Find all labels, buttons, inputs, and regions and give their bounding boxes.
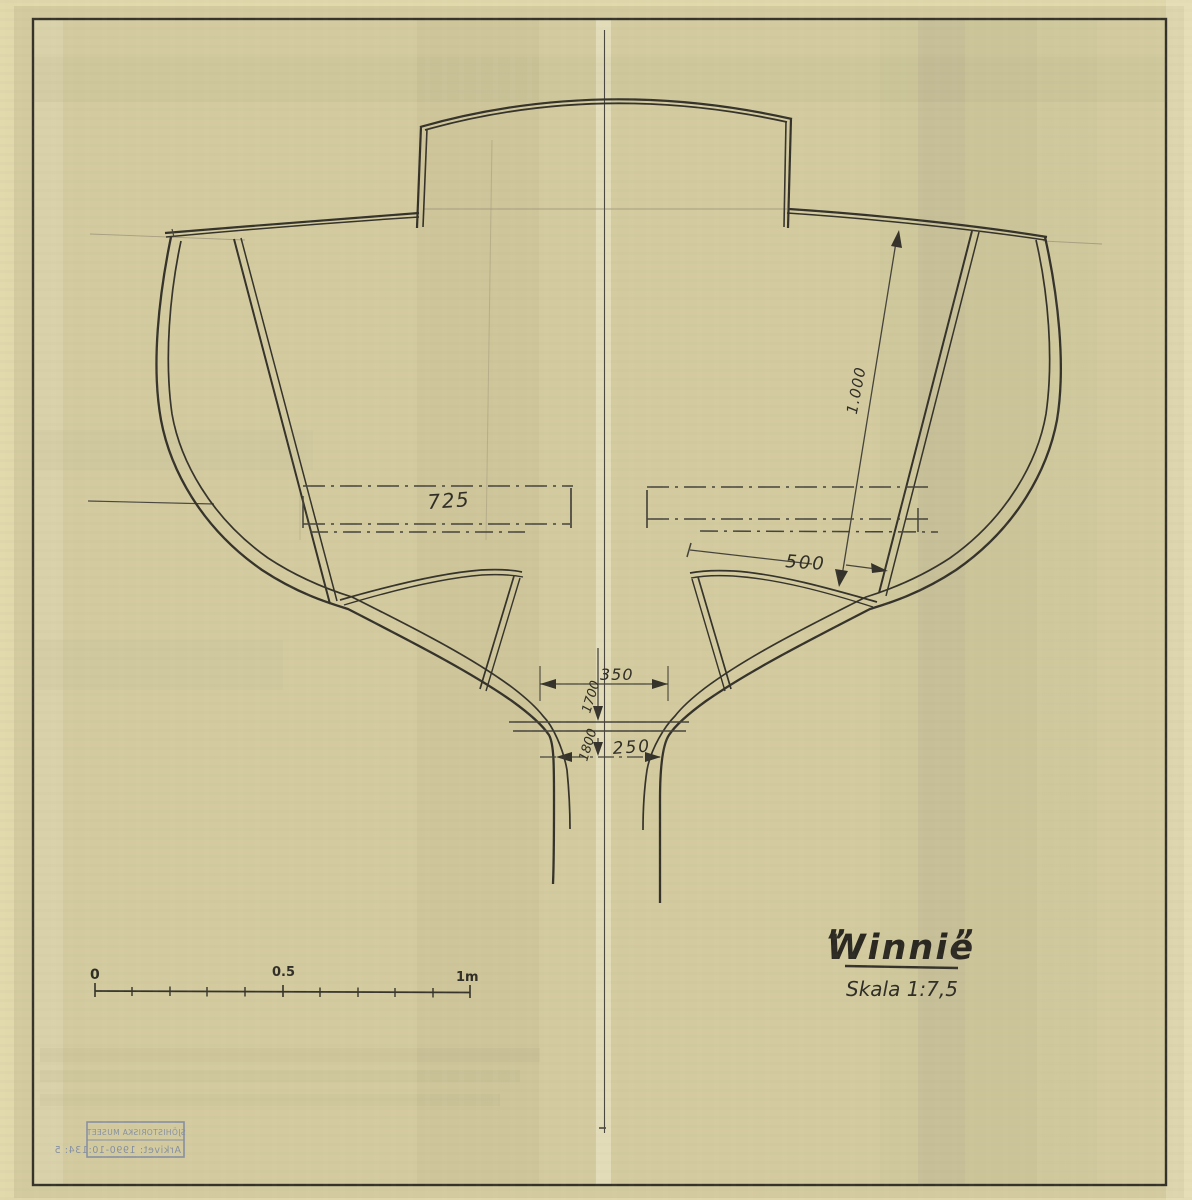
stamp-museum-name: SJÖHISTORISKA MUSEET <box>86 1128 185 1137</box>
scale-bar-label-05: 0.5 <box>272 965 295 980</box>
dim-label-250: 250 <box>612 736 652 759</box>
title-quote-close: ” <box>954 924 973 959</box>
drawing-title: Winnie <box>827 928 975 968</box>
stamp-archive-number: Arkivet: 1990-10:134: 5 <box>54 1145 181 1156</box>
dim-label-350: 350 <box>600 665 634 684</box>
hull-section-svg: 725 1.000 500 350 1700 1800 250 0 0.5 1m… <box>0 0 1192 1200</box>
dim-label-500: 500 <box>785 551 827 575</box>
scale-bar-label-0: 0 <box>90 967 100 983</box>
scale-note: Skala 1:7,5 <box>846 977 958 1001</box>
title-block: ” Winnie ” Skala 1:7,5 <box>826 924 975 1001</box>
dim-label-725: 725 <box>427 487 471 514</box>
blueprint-sheet: 725 1.000 500 350 1700 1800 250 0 0.5 1m… <box>0 0 1192 1200</box>
scale-bar-label-1m: 1m <box>456 970 479 985</box>
